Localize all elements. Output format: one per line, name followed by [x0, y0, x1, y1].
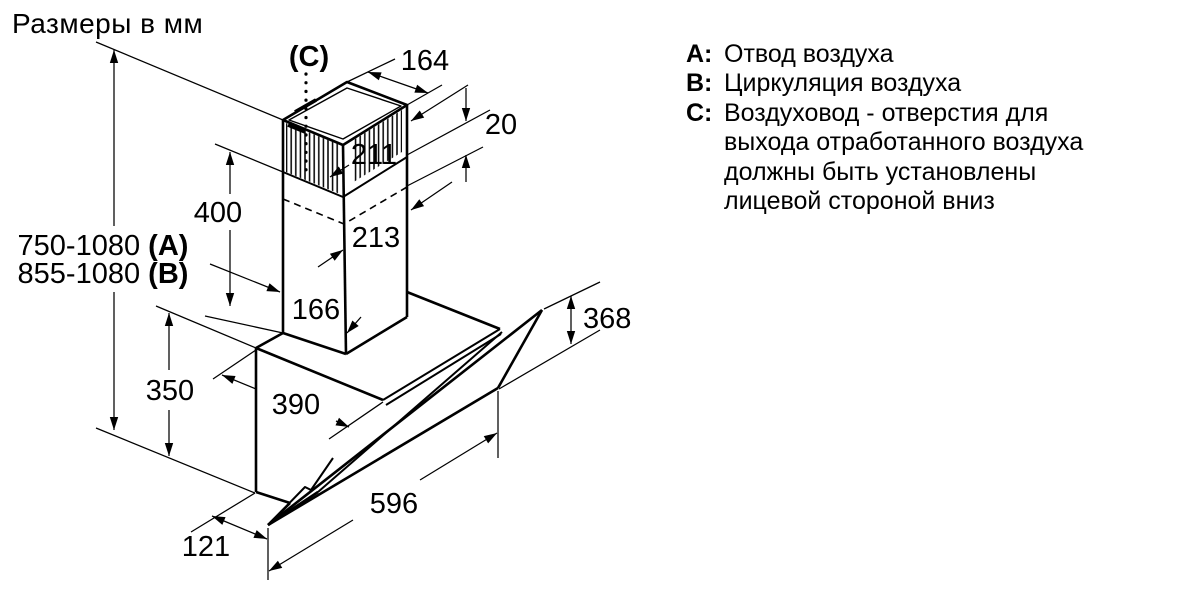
- legend: A:Отвод воздуха B:Циркуляция воздуха C:В…: [686, 40, 1156, 216]
- dim-label-121: 121: [182, 531, 230, 563]
- dimension-diagram-page: Размеры в мм: [0, 0, 1200, 600]
- dim-label-211: 211: [351, 139, 397, 171]
- legend-text-c-line1: Воздуховод - отверстия для: [724, 99, 1048, 127]
- dim-label-20: 20: [485, 109, 517, 141]
- dimension-labels: 164 20 211 400 213 166 750-1080 (A) 855-…: [18, 41, 632, 563]
- extension-lines: [96, 42, 600, 580]
- legend-key-b: B:: [686, 69, 724, 98]
- dim-label-height-b: 855-1080 (B): [18, 258, 189, 290]
- legend-item-b: B:Циркуляция воздуха: [686, 69, 1156, 98]
- dim-label-596: 596: [370, 488, 418, 520]
- legend-key-a: A:: [686, 40, 724, 69]
- legend-text-b: Циркуляция воздуха: [724, 69, 961, 97]
- duct-pointer-label: (C): [289, 41, 329, 73]
- dim-label-213: 213: [352, 222, 400, 254]
- dim-label-390: 390: [272, 389, 320, 421]
- dim-label-164: 164: [401, 45, 449, 77]
- legend-text-a: Отвод воздуха: [724, 40, 894, 68]
- dim-label-350: 350: [146, 375, 194, 407]
- legend-text-c-line2: выхода отработанного воздуха: [724, 128, 1156, 157]
- legend-text-c-line4: лицевой стороной вниз: [724, 187, 1156, 216]
- legend-item-c: C:Воздуховод - отверстия для выхода отра…: [686, 99, 1156, 217]
- legend-text-c-line3: должны быть установлены: [724, 158, 1156, 187]
- dim-label-368: 368: [583, 303, 631, 335]
- legend-item-a: A:Отвод воздуха: [686, 40, 1156, 69]
- dim-label-166: 166: [292, 294, 340, 326]
- legend-key-c: C:: [686, 99, 724, 128]
- dim-label-400: 400: [194, 197, 242, 229]
